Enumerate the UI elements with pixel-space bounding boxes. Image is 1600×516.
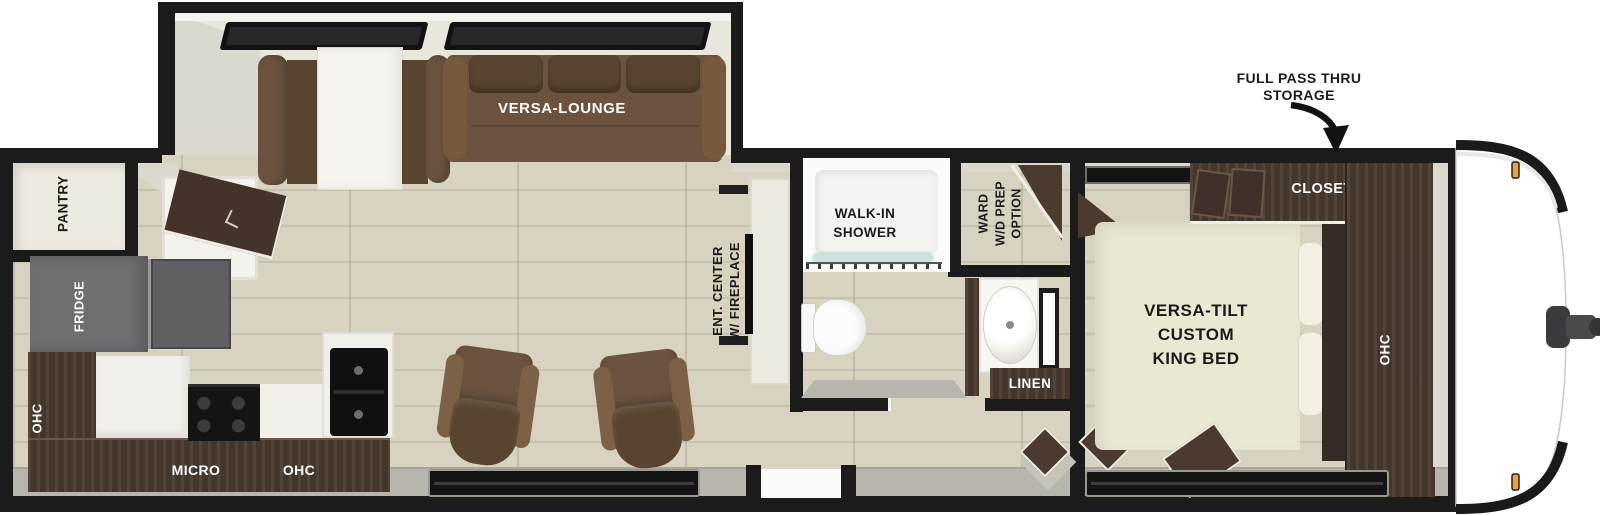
toilet-bowl bbox=[813, 299, 867, 356]
ent-center-cabinet bbox=[750, 178, 790, 385]
clearance-light-bottom bbox=[1512, 474, 1519, 490]
storage-callout-line1: FULL PASS THRU bbox=[1199, 70, 1399, 87]
bed-platform-shadow bbox=[1322, 221, 1346, 461]
dinette-table bbox=[317, 47, 403, 190]
dinette-bench-left-seat bbox=[287, 60, 317, 184]
bath-door-threshold bbox=[888, 398, 991, 411]
bedroom-front-wall-face bbox=[1433, 163, 1448, 467]
shower-door-rail bbox=[806, 262, 942, 269]
bedroom-top-window bbox=[1085, 166, 1194, 184]
ward-label-line2: W/D PREP bbox=[992, 166, 1009, 262]
window-glass bbox=[226, 27, 422, 45]
ward-label-line3: OPTION bbox=[1009, 166, 1026, 262]
mirror-glass bbox=[1043, 293, 1055, 365]
bed-label-line2: CUSTOM bbox=[1106, 323, 1286, 347]
front-cap bbox=[1452, 138, 1600, 516]
ohc-bedroom-label: OHC bbox=[1378, 327, 1392, 373]
entry-door bbox=[761, 467, 841, 498]
shower-label-line2: SHOWER bbox=[800, 223, 930, 242]
stove bbox=[188, 384, 260, 441]
exterior-wall-left bbox=[0, 148, 13, 512]
slideout-window-left bbox=[220, 22, 429, 50]
chair-seat bbox=[610, 400, 685, 472]
swivel-chair-right bbox=[591, 347, 699, 478]
clearance-light-top bbox=[1512, 162, 1519, 178]
ent-center-top-end bbox=[719, 185, 748, 194]
ward-label: WARD W/D PREP OPTION bbox=[976, 166, 1027, 262]
table-hinge-icon bbox=[225, 210, 244, 229]
pantry-label: PANTRY bbox=[56, 164, 70, 244]
bed-pillow-bottom bbox=[1298, 332, 1324, 416]
slideout-window-right bbox=[444, 22, 712, 50]
bed-label: VERSA-TILT CUSTOM KING BED bbox=[1106, 299, 1286, 371]
living-bottom-window bbox=[428, 469, 700, 497]
bath-sill bbox=[801, 380, 967, 398]
sofa-back-cushions bbox=[469, 55, 700, 93]
slideout-ceiling-edge bbox=[175, 13, 731, 21]
fridge-label: FRIDGE bbox=[73, 276, 86, 338]
dinette-bench-left-back bbox=[258, 55, 288, 185]
bath-wall-left bbox=[790, 155, 803, 412]
linen-label: LINEN bbox=[1009, 377, 1052, 391]
chair-seat bbox=[446, 396, 522, 469]
bath-wall-bottom-right bbox=[985, 398, 1073, 411]
ent-center-label-line1: ENT. CENTER bbox=[709, 216, 726, 366]
versa-lounge-label: VERSA-LOUNGE bbox=[482, 101, 642, 116]
ward-wall-bottom bbox=[948, 265, 1072, 277]
closet-door-panel-2 bbox=[1228, 168, 1265, 218]
bed-label-line3: KING BED bbox=[1106, 347, 1286, 371]
bed-pillow-top bbox=[1298, 242, 1324, 326]
sofa-arm-right bbox=[702, 57, 726, 159]
window-mullion bbox=[434, 482, 694, 485]
swivel-chair-left bbox=[432, 343, 542, 475]
ward-label-line1: WARD bbox=[976, 166, 993, 262]
rv-floorplan: VERSA-LOUNGE PANTRY FRIDGE OHC MICRO OHC bbox=[0, 0, 1600, 516]
fridge bbox=[30, 256, 148, 352]
shower-label-line1: WALK-IN bbox=[800, 204, 930, 223]
sofa-seat-seam bbox=[471, 125, 698, 127]
kitchen-counter-a bbox=[96, 356, 190, 438]
sink-drain-top bbox=[354, 366, 363, 375]
linen-cabinet: LINEN bbox=[990, 368, 1070, 399]
dinette-bench-right-seat bbox=[402, 60, 428, 184]
bedroom-bottom-window bbox=[1085, 470, 1389, 497]
kitchen-counter-b bbox=[260, 384, 324, 438]
sofa-arm-left bbox=[443, 57, 467, 159]
sink-drain bbox=[1006, 321, 1014, 329]
bed-label-line1: VERSA-TILT bbox=[1106, 299, 1286, 323]
tv bbox=[745, 234, 753, 334]
shower-label: WALK-IN SHOWER bbox=[800, 204, 930, 242]
window-mullion bbox=[1091, 482, 1383, 485]
closet-door-panel-1 bbox=[1191, 169, 1231, 219]
bath-mirror bbox=[1039, 288, 1059, 370]
bath-sink bbox=[983, 286, 1037, 364]
ent-center-label-line2: W/ FIREPLACE bbox=[726, 216, 743, 366]
exterior-wall-bottom bbox=[0, 496, 1462, 512]
micro-label: MICRO bbox=[156, 463, 236, 477]
ent-center-label: ENT. CENTER W/ FIREPLACE bbox=[709, 216, 743, 366]
pantry-wall-right bbox=[125, 148, 138, 262]
kitchen-sink bbox=[330, 348, 388, 436]
sink-drain-bottom bbox=[354, 410, 363, 419]
window-glass bbox=[450, 27, 705, 45]
ohc-left-label: OHC bbox=[31, 397, 44, 441]
entry-door-post-left bbox=[746, 465, 761, 496]
sink-divider bbox=[334, 390, 384, 394]
vanity-side-panel bbox=[965, 278, 979, 396]
storage-callout-arrow bbox=[1283, 102, 1355, 160]
bath-wall-bottom-left bbox=[790, 398, 888, 411]
ohc-kitchen-label: OHC bbox=[269, 463, 329, 477]
storage-callout: FULL PASS THRU STORAGE bbox=[1199, 70, 1399, 104]
fridge-door bbox=[148, 259, 231, 349]
entry-door-post-right bbox=[841, 465, 856, 496]
